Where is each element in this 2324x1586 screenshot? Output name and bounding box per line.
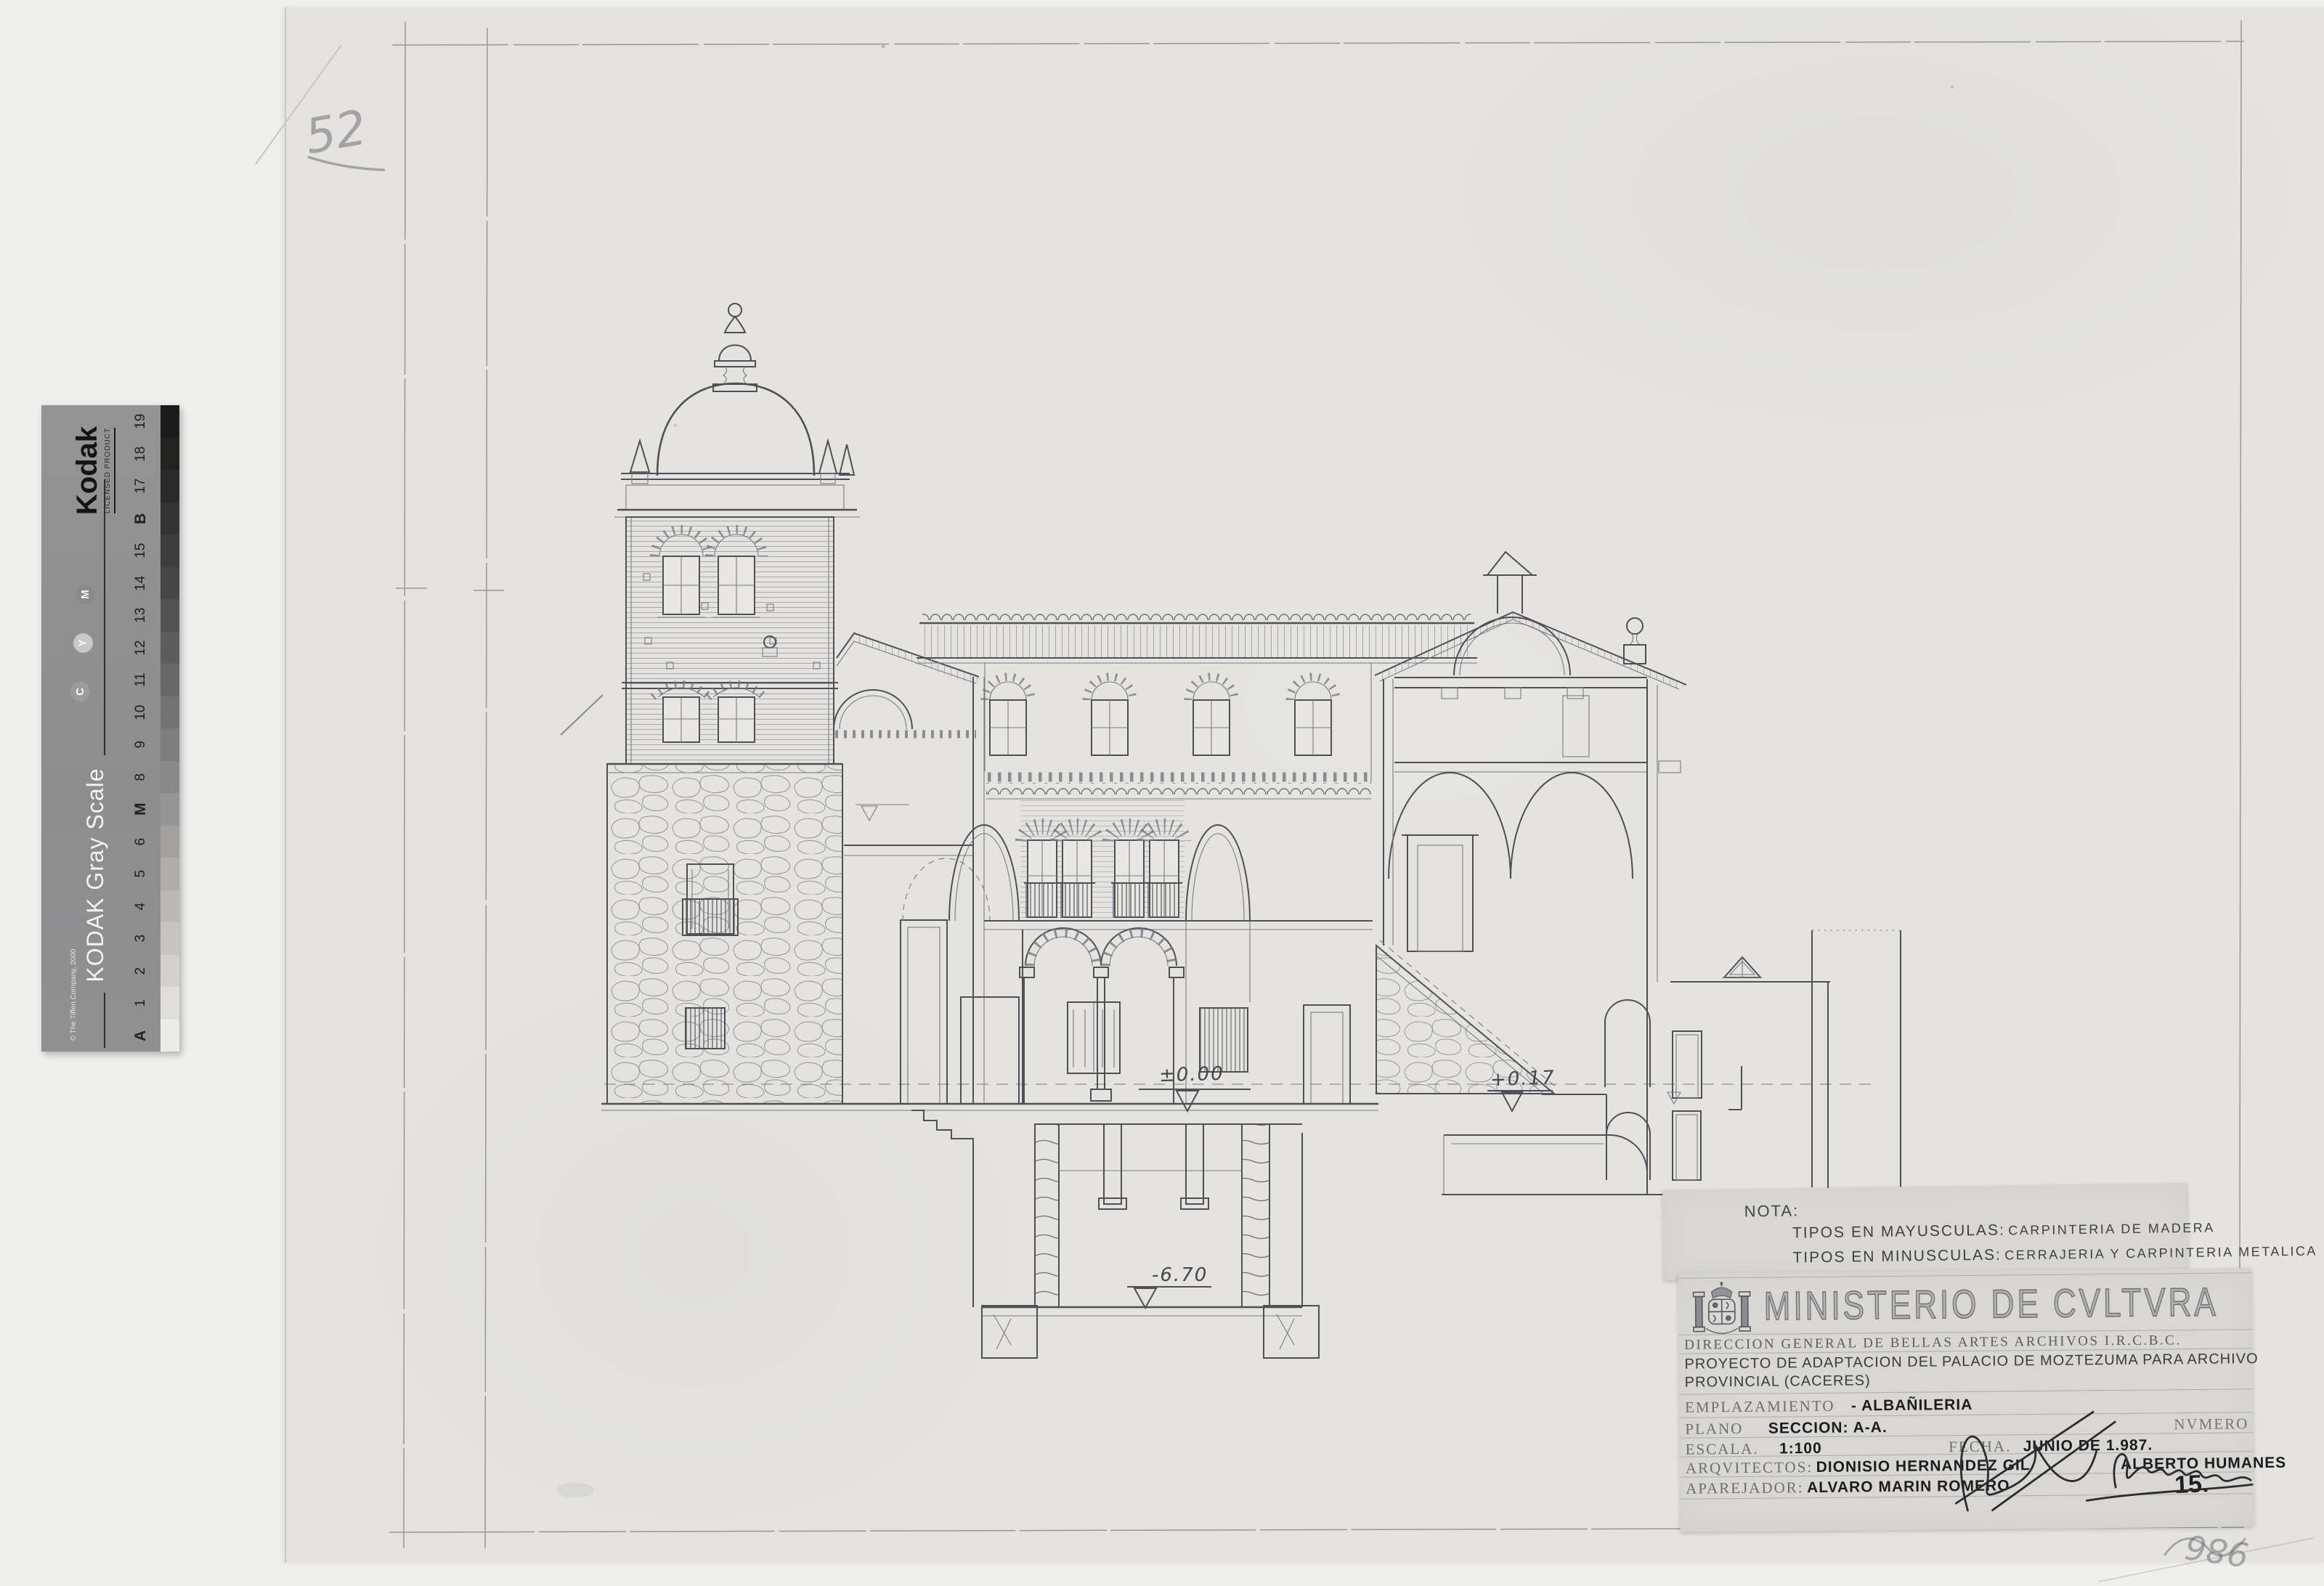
kodak-patch-label: 17 [125,475,158,497]
tower-group [607,304,860,1104]
nota-line2-label: TIPOS EN MINUSCULAS: [1792,1247,2002,1266]
kodak-patch [161,567,179,600]
nota-heading: NOTA: [1744,1201,1799,1221]
kodak-dot-y: Y [73,633,93,653]
nota-box: NOTA: TIPOS EN MAYUSCULAS: CARPINTERIA D… [1662,1183,2188,1280]
kodak-patch-label: 5 [125,863,158,884]
kodak-patch-label: 2 [125,960,158,982]
level-ground: ±0.00 [1159,1063,1224,1086]
kodak-patch [161,858,179,890]
kodak-patch [161,599,179,632]
ground-lines [601,1104,1378,1110]
level-cellar: -6.70 [1152,1264,1208,1286]
kodak-patch [161,503,179,535]
kodak-patch [161,405,179,438]
kodak-logo: Kodak LICENSED PRODUCT [49,416,137,525]
kodak-patch-label: 3 [125,927,158,949]
kodak-patch [161,793,179,826]
kodak-patch-label: 8 [125,766,158,788]
kodak-patch [161,728,179,761]
nota-line1-value: CARPINTERIA DE MADERA [2008,1220,2215,1237]
nota-line2-value: CERRAJERIA Y CARPINTERIA METALICA [2004,1243,2317,1262]
kodak-rule-lower [104,993,105,1048]
kodak-patch-label: 10 [125,701,158,723]
kodak-patch [161,664,179,696]
kodak-patch [161,470,179,503]
kodak-patch [161,955,179,988]
kodak-patches [161,405,179,1052]
kodak-patch [161,438,179,471]
kodak-patch [161,696,179,729]
kodak-dot-m: M [76,585,95,604]
kodak-patch [161,826,179,858]
kodak-patch-label: 14 [125,572,158,594]
corner-scribble-text: 986 [2182,1526,2251,1574]
kodak-patch-label: M [125,798,158,820]
kodak-gray-scale-strip: Kodak LICENSED PRODUCT M Y C KODAK Gray … [41,405,179,1052]
kodak-patch [161,890,179,923]
kodak-patch-label: 18 [125,443,158,465]
kodak-patch-label: A [125,1025,158,1046]
level-landing: +0.17 [1490,1067,1556,1091]
kodak-patch [161,761,179,794]
pencil-sheet-number: 52 [301,99,385,170]
title-block: MINISTERIO DE CVLTVRA DIRECCION GENERAL … [1678,1268,2254,1532]
kodak-dot-c: C [70,682,90,701]
kodak-patch-label: 19 [125,410,158,432]
kodak-patch-label: 11 [125,669,158,691]
nota-line1-label: TIPOS EN MAYUSCULAS: [1792,1221,2005,1241]
kodak-copyright: © The Tiffen Company, 2000 [68,937,78,1053]
kodak-patch [161,922,179,955]
level-markers: ±0.00 +0.17 -6.70 [1127,1063,1556,1308]
kodak-patch-label: 6 [125,831,158,853]
kodak-title: KODAK Gray Scale [82,752,108,999]
kodak-brand-text: Kodak [71,426,104,515]
kodak-patch-label: 4 [125,895,158,917]
kodak-patch [161,534,179,567]
nota-line-1: TIPOS EN MAYUSCULAS: CARPINTERIA DE MADE… [1792,1219,2215,1242]
kodak-patch-label: 1 [125,992,158,1014]
kodak-patch [161,1020,179,1052]
sheet-number-text: 52 [301,99,370,165]
basement-group [911,1110,1319,1358]
kodak-labels: 191817B15141312111098M654321A [130,405,152,1052]
kodak-patch-label: 13 [125,604,158,626]
kodak-patch [161,987,179,1020]
kodak-patch-label: 12 [125,637,158,659]
kodak-patch-label: B [125,508,158,529]
kodak-patch-label: 9 [125,733,158,755]
kodak-rule-upper [104,479,105,755]
kodak-patch [161,632,179,664]
scanned-drawing-page: { "annotations": { "sheet_number_pencil"… [0,0,2324,1586]
kodak-patch-label: 15 [125,540,158,561]
signature-marks [1678,1268,2254,1532]
